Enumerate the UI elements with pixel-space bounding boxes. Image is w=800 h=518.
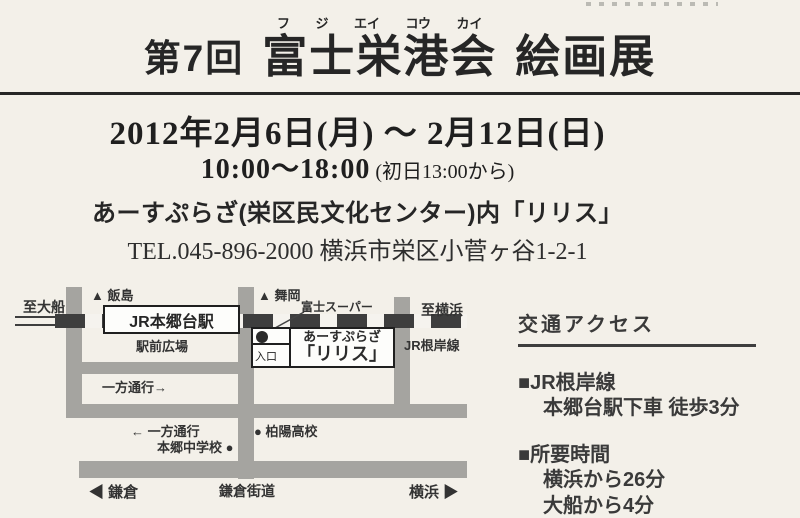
lilith-box-name-column: あーすぷらざ 「リリス」 — [291, 329, 393, 366]
hongodai-station-box: JR本郷台駅 — [103, 305, 240, 334]
exhibition-hours: 10:00～18:00 (初日13:00から) — [0, 147, 715, 187]
venue-name: あーすぷらざ(栄区民文化センター)内「リリス」 — [0, 193, 715, 228]
lilith-venue-box: 入口 あーすぷらざ 「リリス」 — [251, 327, 395, 368]
entrance-dot-cell — [253, 329, 289, 345]
venue-tel-address: TEL.045-896-2000 横浜市栄区小菅ヶ谷1-2-1 — [0, 231, 715, 266]
iijima-label: ▲ 飯島 — [91, 285, 133, 304]
title-furigana: フ ジ エイ コウ カイ — [264, 17, 495, 30]
to-ofuna-label: 至大船 — [23, 297, 65, 317]
transport-access-section: 交通アクセス ■JR根岸線 本郷台駅下車 徒歩3分 ■所要時間 横浜から26分 … — [518, 308, 784, 518]
entrance-dot — [256, 331, 268, 343]
one-way-right-label: 一方通行→ — [102, 377, 167, 396]
lilith-label: 「リリス」 — [297, 345, 387, 365]
access-item-title: ■JR根岸線 — [518, 366, 784, 395]
hakuyo-highschool-label: ● 柏陽高校 — [254, 421, 317, 440]
title-main-text: 富士栄港会 — [262, 31, 497, 82]
furigana-char: エイ — [354, 17, 380, 30]
access-heading: 交通アクセス — [518, 308, 756, 347]
title-suffix: 絵画展 — [515, 34, 656, 79]
maioka-label: ▲ 舞岡 — [258, 285, 300, 304]
hongo-juniorhigh-label: 本郷中学校 ● — [157, 437, 233, 456]
access-item-title: ■所要時間 — [518, 438, 784, 467]
access-item-line: 大船から4分 — [518, 493, 784, 518]
access-item-duration: ■所要時間 横浜から26分 大船から4分 — [518, 438, 784, 518]
furigana-char: フ — [277, 17, 290, 30]
furigana-char: コウ — [406, 17, 431, 30]
flyer-page: 第7回 フ ジ エイ コウ カイ 富士栄港会 絵画展 2012年2月6日(月) … — [0, 0, 800, 518]
access-map: JR本郷台駅 入口 あーすぷらざ 「リリス」 至大船 ▲ 飯島 ▲ 舞岡 富士ス… — [15, 283, 473, 505]
entrance-label: 入口 — [253, 345, 289, 366]
cutoff-print-fragment — [586, 2, 718, 6]
station-label: JR本郷台駅 — [129, 308, 213, 332]
furigana-char: ジ — [316, 17, 329, 30]
lilith-box-left-column: 入口 — [253, 329, 291, 366]
map-overlay-svg — [15, 283, 473, 505]
to-yokohama-label: 至横浜 — [421, 300, 463, 320]
title-prefix: 第7回 — [144, 40, 245, 79]
exhibition-title: 第7回 フ ジ エイ コウ カイ 富士栄港会 絵画展 — [0, 10, 800, 79]
access-item-train: ■JR根岸線 本郷台駅下車 徒歩3分 — [518, 366, 784, 421]
to-kamakura-label: ◀ 鎌倉 — [89, 481, 138, 502]
access-item-line: 横浜から26分 — [518, 467, 784, 493]
access-item-line: 本郷台駅下車 徒歩3分 — [518, 395, 784, 421]
hours-note: (初日13:00から) — [370, 161, 514, 183]
fuji-super-label: 富士スーパー — [301, 298, 373, 315]
earth-plaza-label: あーすぷらざ — [303, 330, 381, 344]
hours-main: 10:00～18:00 — [201, 154, 371, 185]
to-yokohama-bottom-label: 横浜 ▶ — [409, 481, 458, 502]
title-main: フ ジ エイ コウ カイ 富士栄港会 — [262, 34, 497, 79]
station-plaza-label: 駅前広場 — [136, 336, 188, 355]
furigana-char: カイ — [456, 17, 482, 30]
jr-negishi-line-label: JR根岸線 — [404, 335, 460, 354]
title-divider-rule — [0, 92, 800, 95]
kamakura-kaido-label: 鎌倉街道 — [219, 481, 275, 501]
